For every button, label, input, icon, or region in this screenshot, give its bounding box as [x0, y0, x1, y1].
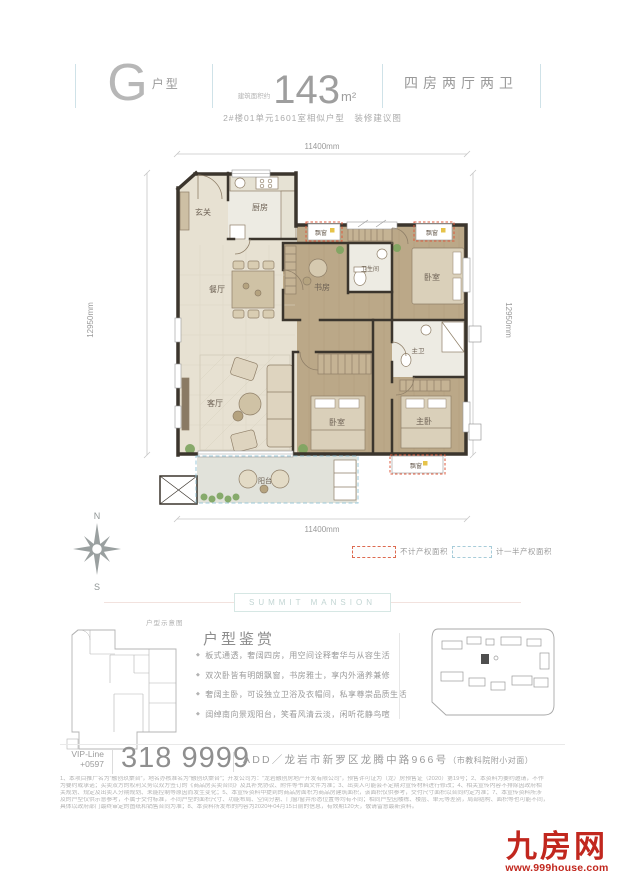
legend-label-no-property: 不计产权面积	[400, 546, 448, 557]
section-divider-vertical	[399, 633, 400, 719]
site-logo-link[interactable]: 九房网 www.999house.com	[494, 831, 620, 874]
room-label-bay3: 飘窗	[410, 462, 422, 470]
address-main: ADD／龙岩市新罗区龙腾中路966号	[243, 752, 448, 767]
vip-line-block: VIP-Line +0597	[56, 750, 104, 769]
room-label-bath: 卫生间	[361, 265, 379, 273]
room-label-bay1: 飘窗	[315, 229, 327, 237]
equipment-platform	[160, 476, 197, 504]
room-label-dining: 餐厅	[209, 285, 225, 294]
room-label-master: 主卧	[416, 416, 432, 426]
area-block: 建筑面积约 143 m²	[212, 58, 382, 108]
compass-south-label: S	[72, 582, 122, 592]
legend-swatch-red-dashed	[352, 546, 396, 558]
plan-subtitle: 2#楼01单元1601室相似户型 装修建议图	[0, 112, 625, 124]
header-separator	[540, 64, 541, 108]
room-label-entry: 玄关	[195, 207, 211, 217]
bullet-item: 双次卧皆有明朗飘窗，书房雅士，享内外涵养兼修	[196, 670, 396, 690]
phone-number: 318 9999	[121, 742, 250, 775]
disclaimer-line: 具体以政府部门最终审定的图纸和销售合同为准；8、本资料所发布的内容为2020年0…	[60, 804, 565, 811]
brand-badge-row: SUMMIT MANSION	[0, 593, 625, 612]
disclaimer-line: 及的户型仅供示意参考，不属于交付标准，不同户型的面积尺寸、功能布局、空间分割、门…	[60, 797, 565, 804]
compass: N S	[72, 511, 122, 595]
dim-left: 12950mm	[86, 302, 95, 338]
badge-line-right	[391, 602, 521, 603]
area-label: 建筑面积约	[238, 90, 271, 100]
site-logo-name: 九房网	[494, 831, 620, 863]
siteplan-building-marker	[481, 654, 489, 664]
legend-label-half-property: 计一半产权面积	[496, 546, 552, 557]
badge-line-left	[104, 602, 234, 603]
compass-rose-icon	[72, 521, 122, 577]
siteplan-map	[424, 626, 558, 718]
room-label-study: 书房	[314, 282, 330, 292]
disclaimer-line: 关规划、规定及出卖人分期规划、未能控制等原因而发生变化；5、本宣传资料中提到的商…	[60, 790, 565, 797]
disclaimer-line: 为要约或承诺；买卖双方的权利义务以双方签订的《商品房买卖合同》及其补充协议、附件…	[60, 783, 565, 790]
compass-north-label: N	[72, 511, 122, 521]
contact-separator	[112, 750, 113, 774]
room-label-balcony: 阳台	[258, 476, 272, 485]
appreciation-bullets: 板式通透，奢阔四房，用空间诠释奢华与从容生活 双次卧皆有明朗飘窗，书房雅士，享内…	[196, 650, 396, 728]
flyer-page: G 户型 建筑面积约 143 m² 四房两厅两卫 2#楼01单元1601室相似户…	[0, 0, 625, 882]
unit-type-suffix: 户型	[152, 75, 180, 92]
bullet-item: 板式通透，奢阔四房，用空间诠释奢华与从容生活	[196, 650, 396, 670]
area-unit: m²	[341, 89, 356, 104]
room-label-bedroom-b: 卧室	[329, 417, 345, 427]
legend-swatch-blue-dashed	[452, 546, 492, 558]
rooms-count-label: 四房两厅两卫	[382, 58, 540, 108]
dim-right: 12950mm	[504, 302, 513, 338]
unit-type-block: G 户型	[75, 56, 212, 110]
brand-badge: SUMMIT MANSION	[234, 593, 391, 612]
area-value: 143	[273, 72, 340, 108]
address-note: （市教科院附小对面）	[448, 755, 533, 766]
room-label-living: 客厅	[207, 398, 223, 408]
floorplan-thumbnail	[66, 624, 186, 756]
floorplan-drawing: 11400mm 11400mm 12950mm 12950mm	[60, 140, 565, 545]
room-label-master-bath: 主卫	[412, 346, 426, 355]
dim-bottom: 11400mm	[305, 525, 340, 534]
bullet-item: 奢阔主卧，可设独立卫浴及衣帽间，私享尊崇品质生活	[196, 689, 396, 709]
room-label-bay2: 飘窗	[426, 229, 438, 237]
contact-separator	[233, 752, 234, 772]
unit-type-letter: G	[107, 57, 147, 109]
room-label-kitchen: 厨房	[252, 202, 268, 212]
disclaimer-line: 1、本项目推广名为“融创玖棠台”，地名办核准名为“融创玖棠台”；开发公司为：“龙…	[60, 776, 565, 783]
address-block: ADD／龙岩市新罗区龙腾中路966号 （市教科院附小对面）	[243, 752, 533, 767]
section-title-appreciation: 户型鉴赏	[203, 628, 275, 649]
vip-line-code: +0597	[56, 760, 104, 770]
bullet-item: 阔绰南向景观阳台，笑看风清云淡，闲听花静鸟喧	[196, 709, 396, 729]
room-label-bedroom-a: 卧室	[424, 272, 440, 282]
disclaimer-block: 1、本项目推广名为“融创玖棠台”，地名办核准名为“融创玖棠台”；开发公司为：“龙…	[60, 776, 565, 811]
dim-top: 11400mm	[305, 142, 340, 151]
site-logo-url: www.999house.com	[494, 863, 620, 874]
